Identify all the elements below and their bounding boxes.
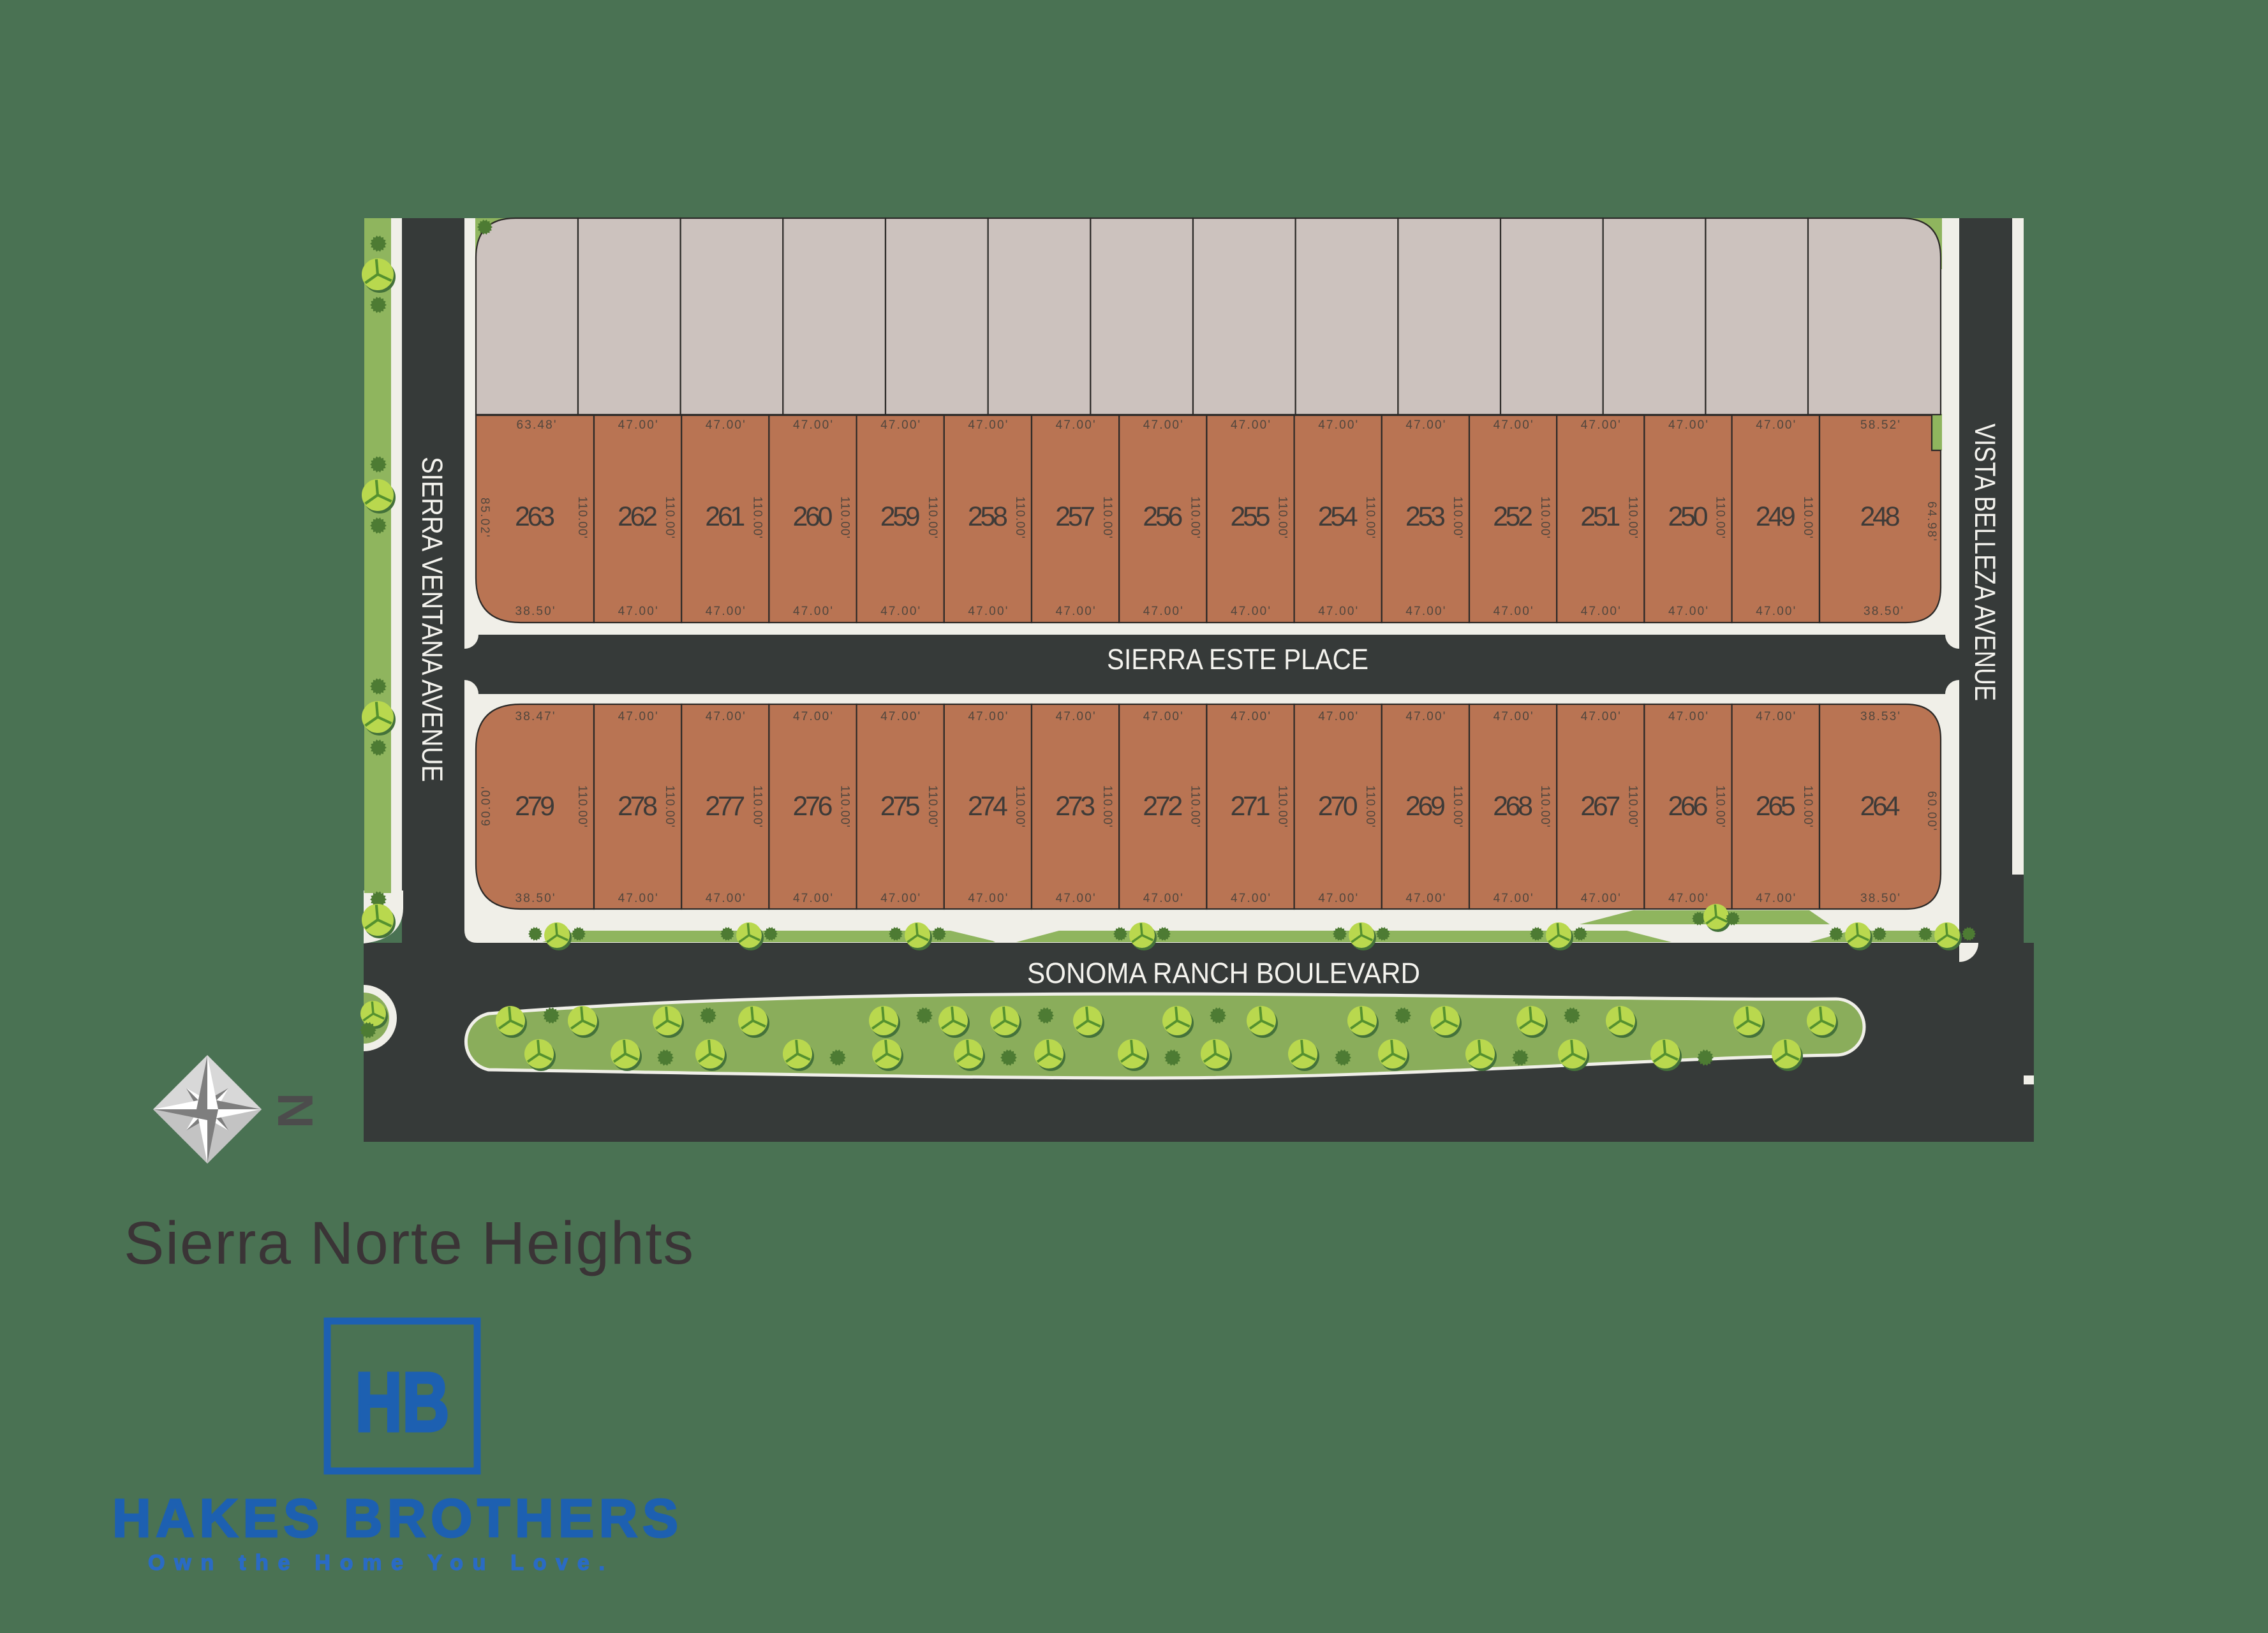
svg-text:254: 254	[1318, 501, 1358, 532]
svg-text:264: 264	[1860, 791, 1901, 822]
svg-text:SONOMA RANCH BOULEVARD: SONOMA RANCH BOULEVARD	[1027, 957, 1420, 989]
svg-text:110.00': 110.00'	[1276, 496, 1289, 538]
svg-text:110.00': 110.00'	[1101, 496, 1114, 538]
svg-text:255: 255	[1231, 501, 1271, 532]
svg-text:110.00': 110.00'	[1714, 785, 1727, 827]
svg-text:277: 277	[705, 791, 745, 822]
svg-text:274: 274	[968, 791, 1008, 822]
svg-text:110.00': 110.00'	[926, 785, 939, 827]
svg-text:271: 271	[1231, 791, 1271, 822]
svg-text:110.00': 110.00'	[1626, 496, 1639, 538]
svg-text:110.00': 110.00'	[1538, 496, 1552, 538]
svg-text:110.00': 110.00'	[750, 496, 764, 538]
svg-text:110.00': 110.00'	[1626, 785, 1639, 827]
svg-text:252: 252	[1493, 501, 1533, 532]
svg-text:248: 248	[1860, 501, 1901, 532]
svg-text:110.00': 110.00'	[1801, 785, 1814, 827]
svg-text:110.00': 110.00'	[1363, 496, 1377, 538]
svg-text:267: 267	[1580, 791, 1620, 822]
svg-text:110.00': 110.00'	[1451, 496, 1464, 538]
svg-text:110.00': 110.00'	[575, 496, 589, 538]
svg-text:110.00': 110.00'	[750, 785, 764, 827]
svg-text:110.00': 110.00'	[1451, 785, 1464, 827]
svg-text:272: 272	[1143, 791, 1183, 822]
svg-text:SIERRA VENTANA AVENUE: SIERRA VENTANA AVENUE	[416, 457, 448, 782]
svg-text:261: 261	[705, 501, 745, 532]
svg-text:110.00': 110.00'	[838, 496, 852, 538]
svg-text:279: 279	[515, 791, 555, 822]
svg-text:VISTA BELLEZA AVENUE: VISTA BELLEZA AVENUE	[1969, 424, 2001, 701]
svg-text:SIERRA ESTE PLACE: SIERRA ESTE PLACE	[1107, 643, 1368, 676]
svg-text:110.00': 110.00'	[1101, 785, 1114, 827]
svg-text:110.00': 110.00'	[1714, 496, 1727, 538]
svg-text:268: 268	[1493, 791, 1533, 822]
svg-text:260: 260	[793, 501, 833, 532]
svg-text:110.00': 110.00'	[1801, 496, 1814, 538]
svg-text:256: 256	[1143, 501, 1183, 532]
svg-text:HB: HB	[355, 1356, 450, 1449]
svg-text:110.00': 110.00'	[1013, 496, 1027, 538]
svg-text:250: 250	[1668, 501, 1708, 532]
svg-text:275: 275	[880, 791, 921, 822]
svg-text:263: 263	[515, 501, 555, 532]
svg-text:265: 265	[1756, 791, 1796, 822]
svg-text:110.00': 110.00'	[1013, 785, 1027, 827]
svg-text:110.00': 110.00'	[1188, 496, 1201, 538]
svg-text:259: 259	[880, 501, 921, 532]
svg-text:110.00': 110.00'	[1276, 785, 1289, 827]
svg-text:110.00': 110.00'	[663, 785, 676, 827]
svg-text:262: 262	[618, 501, 658, 532]
svg-text:257: 257	[1055, 501, 1095, 532]
svg-text:110.00': 110.00'	[1363, 785, 1377, 827]
svg-text:270: 270	[1318, 791, 1358, 822]
svg-text:278: 278	[618, 791, 658, 822]
svg-text:269: 269	[1405, 791, 1446, 822]
svg-text:110.00': 110.00'	[663, 496, 676, 538]
svg-text:273: 273	[1055, 791, 1095, 822]
svg-text:249: 249	[1756, 501, 1796, 532]
svg-text:253: 253	[1405, 501, 1446, 532]
svg-text:266: 266	[1668, 791, 1708, 822]
svg-text:251: 251	[1580, 501, 1620, 532]
svg-text:110.00': 110.00'	[1538, 785, 1552, 827]
svg-text:258: 258	[968, 501, 1008, 532]
svg-text:110.00': 110.00'	[926, 496, 939, 538]
svg-text:276: 276	[793, 791, 833, 822]
svg-text:110.00': 110.00'	[575, 785, 589, 827]
svg-text:110.00': 110.00'	[838, 785, 852, 827]
svg-text:110.00': 110.00'	[1188, 785, 1201, 827]
svg-text:Sierra Norte Heights: Sierra Norte Heights	[124, 1209, 693, 1277]
svg-text:N: N	[267, 1093, 323, 1128]
